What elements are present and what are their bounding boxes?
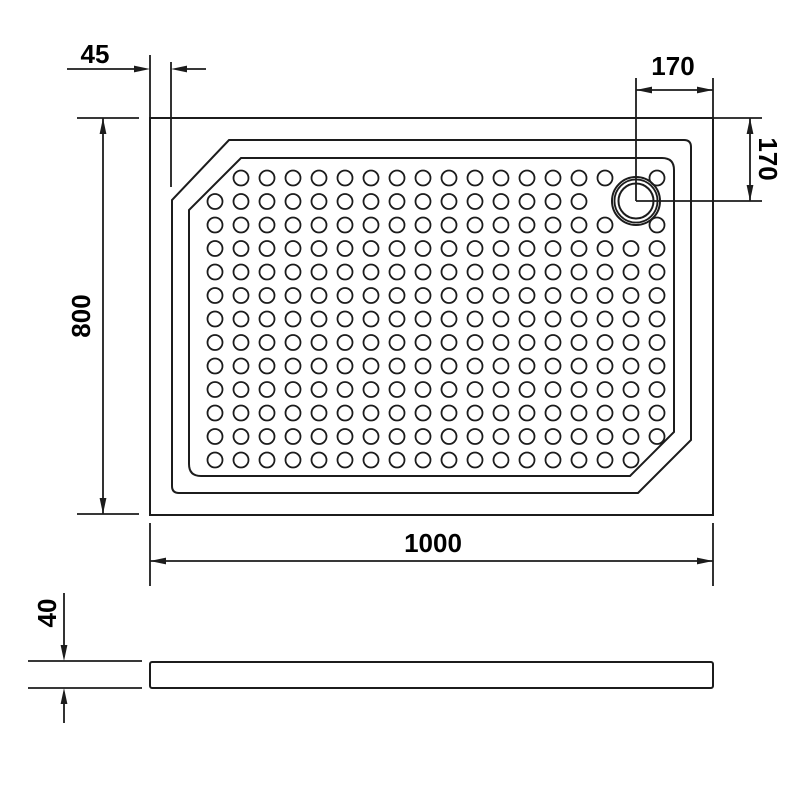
anti-slip-dot: [312, 265, 327, 280]
anti-slip-dot: [624, 429, 639, 444]
arrowhead-left-icon: [171, 66, 187, 73]
anti-slip-dot: [546, 359, 561, 374]
anti-slip-dot: [390, 406, 405, 421]
anti-slip-dot: [208, 453, 223, 468]
anti-slip-dot: [312, 429, 327, 444]
top-view: [150, 118, 713, 515]
anti-slip-dot: [416, 312, 431, 327]
anti-slip-dot: [312, 453, 327, 468]
anti-slip-dot: [650, 265, 665, 280]
anti-slip-dot: [598, 406, 613, 421]
anti-slip-dot: [624, 382, 639, 397]
anti-slip-dot: [234, 429, 249, 444]
anti-slip-dot: [572, 241, 587, 256]
anti-slip-dot: [624, 241, 639, 256]
anti-slip-dot: [390, 194, 405, 209]
anti-slip-dot: [338, 312, 353, 327]
anti-slip-dot: [416, 241, 431, 256]
anti-slip-dot: [364, 288, 379, 303]
anti-slip-dot: [312, 194, 327, 209]
anti-slip-dot: [546, 429, 561, 444]
anti-slip-dot: [338, 429, 353, 444]
anti-slip-dot: [260, 194, 275, 209]
anti-slip-dot: [234, 265, 249, 280]
anti-slip-dot: [624, 288, 639, 303]
anti-slip-dot: [494, 171, 509, 186]
anti-slip-dot: [260, 241, 275, 256]
anti-slip-dot: [338, 335, 353, 350]
anti-slip-dot: [546, 288, 561, 303]
anti-slip-dot: [208, 406, 223, 421]
anti-slip-dot: [338, 359, 353, 374]
anti-slip-dot: [494, 406, 509, 421]
anti-slip-dot: [650, 288, 665, 303]
anti-slip-dot: [650, 406, 665, 421]
anti-slip-dot: [364, 218, 379, 233]
anti-slip-dot: [624, 359, 639, 374]
anti-slip-dot: [234, 218, 249, 233]
anti-slip-dot: [468, 171, 483, 186]
anti-slip-dot: [468, 359, 483, 374]
anti-slip-dot: [468, 218, 483, 233]
anti-slip-dot: [286, 218, 301, 233]
anti-slip-dot: [520, 194, 535, 209]
dimension-depth: 800: [66, 118, 139, 514]
dimension-label-800: 800: [66, 294, 96, 337]
anti-slip-dot: [364, 241, 379, 256]
anti-slip-dot: [598, 171, 613, 186]
anti-slip-dot: [338, 453, 353, 468]
anti-slip-dot: [546, 218, 561, 233]
dimension-rim-offset: 45: [67, 39, 206, 187]
anti-slip-dot: [520, 171, 535, 186]
anti-slip-dot: [572, 265, 587, 280]
anti-slip-dot: [650, 335, 665, 350]
anti-slip-dot: [234, 382, 249, 397]
anti-slip-dot: [338, 265, 353, 280]
anti-slip-dot: [468, 312, 483, 327]
anti-slip-dot: [390, 218, 405, 233]
anti-slip-dot: [494, 359, 509, 374]
anti-slip-dot: [208, 382, 223, 397]
anti-slip-dot: [442, 241, 457, 256]
anti-slip-dot: [234, 171, 249, 186]
anti-slip-dot: [598, 335, 613, 350]
anti-slip-dot: [364, 265, 379, 280]
anti-slip-dot: [390, 382, 405, 397]
anti-slip-dot: [546, 335, 561, 350]
anti-slip-dot: [468, 241, 483, 256]
anti-slip-dot: [598, 218, 613, 233]
anti-slip-dot: [260, 406, 275, 421]
anti-slip-dot: [286, 194, 301, 209]
anti-slip-dot: [286, 288, 301, 303]
arrowhead-up-icon: [747, 118, 754, 134]
anti-slip-dot: [234, 406, 249, 421]
anti-slip-dot: [286, 335, 301, 350]
anti-slip-dot: [494, 194, 509, 209]
anti-slip-dot: [468, 382, 483, 397]
anti-slip-dot: [494, 335, 509, 350]
anti-slip-dot: [598, 288, 613, 303]
anti-slip-dot: [494, 312, 509, 327]
dimension-width: 1000: [150, 523, 713, 586]
tray-profile-outline: [150, 662, 713, 688]
anti-slip-dot: [416, 171, 431, 186]
anti-slip-dot: [572, 194, 587, 209]
anti-slip-dot: [624, 335, 639, 350]
anti-slip-dot: [598, 453, 613, 468]
anti-slip-dot: [286, 265, 301, 280]
anti-slip-dot: [286, 312, 301, 327]
arrowhead-left-icon: [150, 558, 166, 565]
side-view: [150, 662, 713, 688]
anti-slip-dot: [260, 359, 275, 374]
dimension-label-45: 45: [81, 39, 110, 69]
anti-slip-dot: [650, 429, 665, 444]
anti-slip-dot: [442, 335, 457, 350]
anti-slip-dot: [260, 218, 275, 233]
anti-slip-dot: [546, 382, 561, 397]
anti-slip-dot: [468, 265, 483, 280]
anti-slip-dot: [312, 359, 327, 374]
anti-slip-dot: [598, 382, 613, 397]
arrowhead-up-icon: [61, 688, 68, 704]
anti-slip-dot: [572, 312, 587, 327]
arrowhead-right-icon: [697, 558, 713, 565]
anti-slip-dot: [468, 429, 483, 444]
anti-slip-dot: [572, 453, 587, 468]
anti-slip-dot: [390, 241, 405, 256]
anti-slip-dot: [442, 382, 457, 397]
anti-slip-dot: [520, 359, 535, 374]
anti-slip-dot: [260, 265, 275, 280]
anti-slip-dot: [416, 429, 431, 444]
anti-slip-dot: [546, 171, 561, 186]
anti-slip-dot: [468, 406, 483, 421]
anti-slip-dot: [572, 406, 587, 421]
anti-slip-dot: [286, 171, 301, 186]
anti-slip-dot: [546, 194, 561, 209]
anti-slip-dot: [598, 359, 613, 374]
anti-slip-dot: [494, 265, 509, 280]
anti-slip-dot: [598, 241, 613, 256]
anti-slip-dot: [312, 218, 327, 233]
anti-slip-dot: [208, 241, 223, 256]
anti-slip-dot: [546, 453, 561, 468]
anti-slip-dot: [520, 382, 535, 397]
dimension-label-170-right: 170: [753, 137, 783, 180]
anti-slip-dot: [286, 382, 301, 397]
technical-drawing-canvas: 45 170 170 800 1000: [0, 0, 800, 800]
anti-slip-dot: [260, 382, 275, 397]
anti-slip-dot: [520, 288, 535, 303]
anti-slip-dot: [442, 218, 457, 233]
anti-slip-dot: [338, 218, 353, 233]
anti-slip-dot: [442, 312, 457, 327]
anti-slip-dot: [416, 359, 431, 374]
anti-slip-dot: [572, 335, 587, 350]
anti-slip-dot: [338, 288, 353, 303]
anti-slip-dot: [208, 265, 223, 280]
anti-slip-dot: [416, 218, 431, 233]
anti-slip-dot: [364, 171, 379, 186]
anti-slip-dot: [390, 335, 405, 350]
anti-slip-dot: [442, 429, 457, 444]
anti-slip-dot: [338, 406, 353, 421]
anti-slip-dot: [260, 335, 275, 350]
anti-slip-dot: [364, 312, 379, 327]
anti-slip-dot: [208, 194, 223, 209]
anti-slip-dot: [234, 312, 249, 327]
anti-slip-dot: [546, 265, 561, 280]
anti-slip-dot: [208, 218, 223, 233]
anti-slip-dot: [520, 335, 535, 350]
arrowhead-up-icon: [100, 118, 107, 134]
arrowhead-right-icon: [697, 87, 713, 94]
anti-slip-dot: [442, 359, 457, 374]
anti-slip-dot: [260, 453, 275, 468]
anti-slip-dot: [442, 453, 457, 468]
arrowhead-down-icon: [747, 185, 754, 201]
anti-slip-dot: [572, 429, 587, 444]
anti-slip-dot: [312, 335, 327, 350]
anti-slip-dot: [468, 288, 483, 303]
anti-slip-dot-grid: [208, 171, 665, 468]
anti-slip-dot: [390, 265, 405, 280]
anti-slip-dot: [286, 429, 301, 444]
anti-slip-dot: [442, 171, 457, 186]
anti-slip-dot: [208, 429, 223, 444]
anti-slip-dot: [572, 382, 587, 397]
anti-slip-dot: [390, 453, 405, 468]
anti-slip-dot: [390, 359, 405, 374]
anti-slip-dot: [208, 359, 223, 374]
anti-slip-dot: [234, 453, 249, 468]
anti-slip-dot: [312, 241, 327, 256]
anti-slip-dot: [286, 241, 301, 256]
dimension-label-170-top: 170: [651, 51, 694, 81]
anti-slip-dot: [390, 171, 405, 186]
arrowhead-down-icon: [100, 498, 107, 514]
anti-slip-dot: [338, 194, 353, 209]
anti-slip-dot: [416, 194, 431, 209]
anti-slip-dot: [390, 429, 405, 444]
anti-slip-dot: [650, 241, 665, 256]
anti-slip-dot: [364, 429, 379, 444]
anti-slip-dot: [520, 429, 535, 444]
anti-slip-dot: [260, 429, 275, 444]
anti-slip-dot: [286, 406, 301, 421]
anti-slip-dot: [260, 171, 275, 186]
anti-slip-dot: [520, 312, 535, 327]
anti-slip-dot: [390, 288, 405, 303]
anti-slip-dot: [416, 382, 431, 397]
anti-slip-dot: [312, 312, 327, 327]
anti-slip-dot: [572, 288, 587, 303]
arrowhead-down-icon: [61, 645, 68, 661]
anti-slip-dot: [468, 453, 483, 468]
anti-slip-dot: [442, 265, 457, 280]
anti-slip-dot: [364, 359, 379, 374]
anti-slip-dot: [546, 241, 561, 256]
anti-slip-dot: [416, 453, 431, 468]
anti-slip-dot: [650, 359, 665, 374]
anti-slip-dot: [260, 288, 275, 303]
anti-slip-dot: [546, 406, 561, 421]
anti-slip-dot: [520, 406, 535, 421]
anti-slip-dot: [208, 312, 223, 327]
anti-slip-dot: [520, 218, 535, 233]
anti-slip-dot: [442, 288, 457, 303]
anti-slip-dot: [520, 453, 535, 468]
anti-slip-dot: [208, 335, 223, 350]
anti-slip-dot: [494, 218, 509, 233]
anti-slip-dot: [494, 241, 509, 256]
anti-slip-dot: [390, 312, 405, 327]
anti-slip-dot: [494, 288, 509, 303]
arrowhead-left-icon: [636, 87, 652, 94]
dimension-drain-vertical: 170: [636, 118, 783, 201]
anti-slip-dot: [208, 288, 223, 303]
anti-slip-dot: [312, 288, 327, 303]
anti-slip-dot: [416, 265, 431, 280]
anti-slip-dot: [260, 312, 275, 327]
anti-slip-dot: [338, 382, 353, 397]
anti-slip-dot: [546, 312, 561, 327]
anti-slip-dot: [572, 359, 587, 374]
anti-slip-dot: [494, 429, 509, 444]
anti-slip-dot: [650, 312, 665, 327]
anti-slip-dot: [494, 382, 509, 397]
anti-slip-dot: [520, 241, 535, 256]
anti-slip-dot: [312, 171, 327, 186]
anti-slip-dot: [598, 312, 613, 327]
anti-slip-dot: [468, 194, 483, 209]
anti-slip-dot: [234, 288, 249, 303]
anti-slip-dot: [442, 194, 457, 209]
anti-slip-dot: [624, 406, 639, 421]
anti-slip-dot: [234, 359, 249, 374]
anti-slip-dot: [234, 194, 249, 209]
anti-slip-dot: [624, 312, 639, 327]
anti-slip-dot: [598, 429, 613, 444]
anti-slip-dot: [286, 453, 301, 468]
dimension-label-40: 40: [32, 599, 62, 628]
anti-slip-dot: [572, 171, 587, 186]
anti-slip-dot: [520, 265, 535, 280]
dimension-height: 40: [28, 593, 142, 723]
anti-slip-dot: [468, 335, 483, 350]
arrowhead-right-icon: [134, 66, 150, 73]
anti-slip-dot: [598, 265, 613, 280]
anti-slip-dot: [338, 171, 353, 186]
anti-slip-dot: [338, 241, 353, 256]
dimension-label-1000: 1000: [404, 528, 462, 558]
anti-slip-dot: [442, 406, 457, 421]
anti-slip-dot: [364, 194, 379, 209]
anti-slip-dot: [312, 406, 327, 421]
anti-slip-dot: [416, 406, 431, 421]
anti-slip-dot: [624, 453, 639, 468]
anti-slip-dot: [312, 382, 327, 397]
anti-slip-dot: [416, 288, 431, 303]
anti-slip-dot: [650, 382, 665, 397]
anti-slip-dot: [234, 241, 249, 256]
anti-slip-dot: [494, 453, 509, 468]
anti-slip-dot: [286, 359, 301, 374]
anti-slip-dot: [364, 406, 379, 421]
anti-slip-dot: [572, 218, 587, 233]
anti-slip-dot: [364, 382, 379, 397]
shower-tray-drawing: 45 170 170 800 1000: [0, 0, 800, 800]
anti-slip-dot: [364, 453, 379, 468]
anti-slip-dot: [624, 265, 639, 280]
anti-slip-dot: [234, 335, 249, 350]
anti-slip-dot: [364, 335, 379, 350]
anti-slip-dot: [416, 335, 431, 350]
